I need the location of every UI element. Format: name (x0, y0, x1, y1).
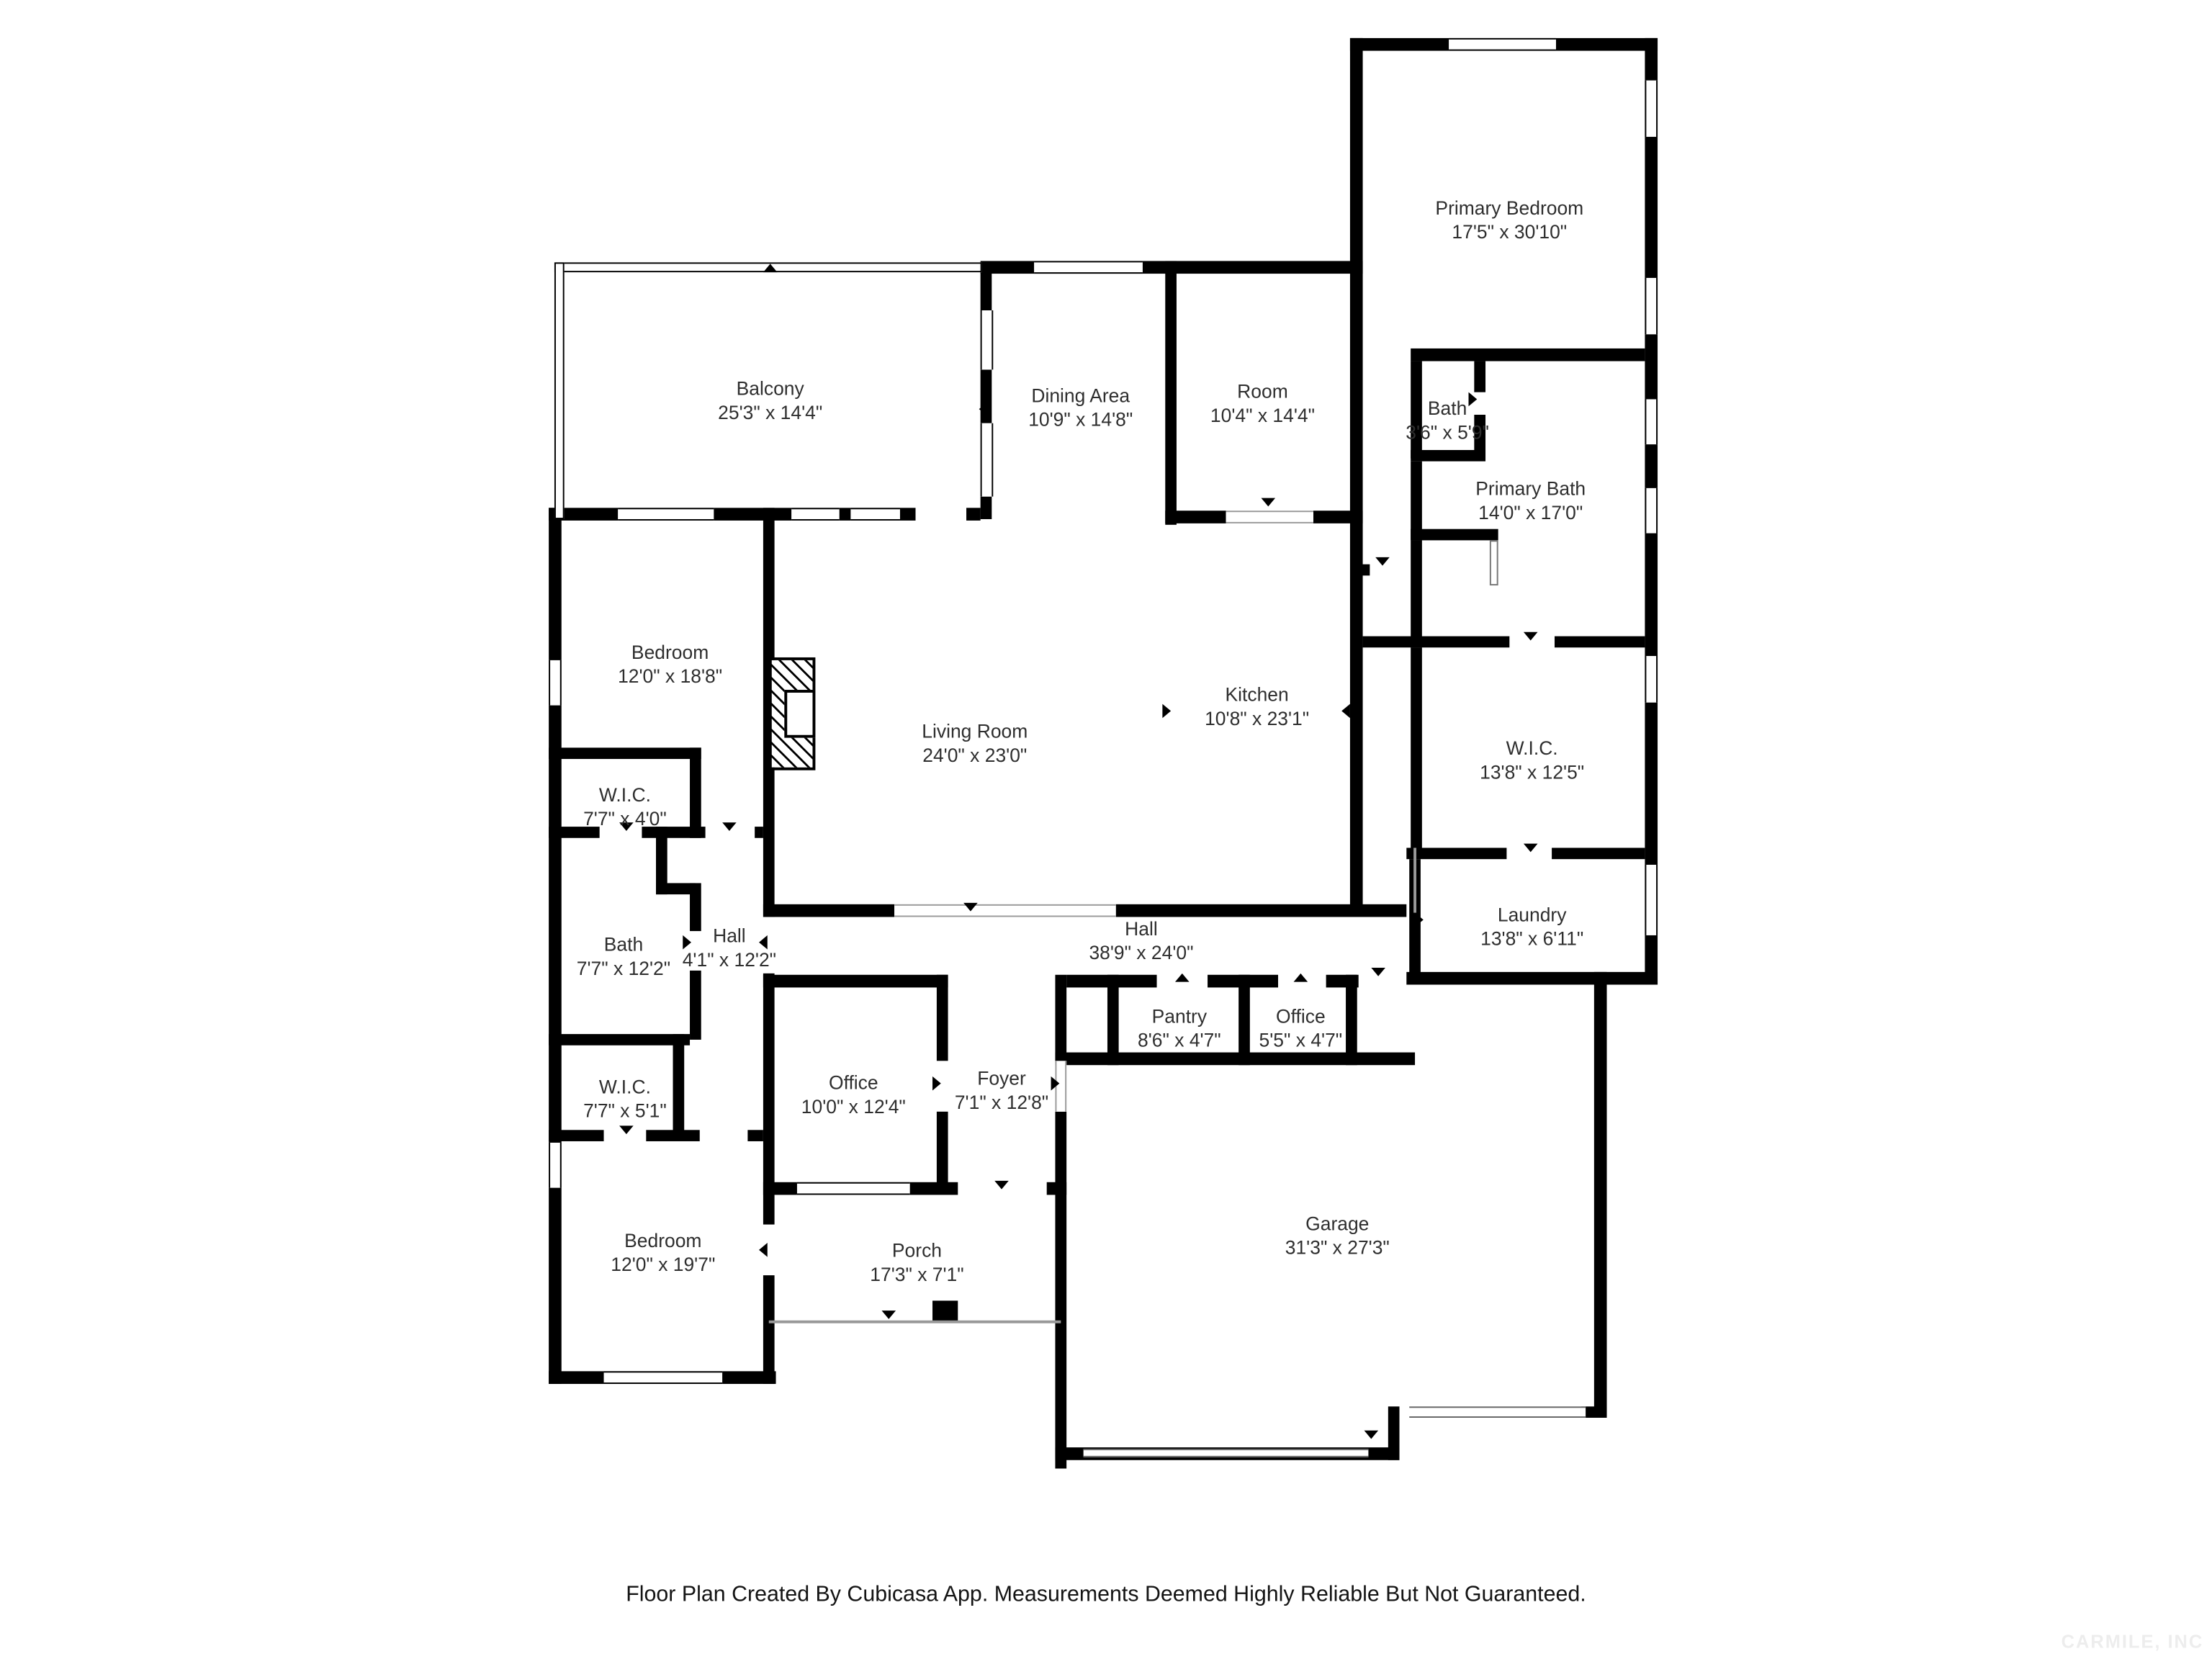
wall-segment (937, 1112, 948, 1192)
wall-segment (1055, 1053, 1415, 1066)
room-label-bath-hall: Bath 7'7" x 12'2" (577, 932, 670, 981)
wall-segment (1116, 904, 1407, 917)
wall-segment (1238, 975, 1250, 1065)
room-label-dining-area: Dining Area 10'9" x 14'8" (1028, 384, 1133, 432)
wall-segment (646, 1130, 699, 1141)
door-marker (1415, 913, 1424, 927)
window-marker (604, 1371, 723, 1384)
garage-door-marker (1084, 1449, 1369, 1457)
wall-opening (894, 904, 1116, 917)
door-marker (1175, 974, 1190, 982)
fireplace-notch (784, 690, 815, 738)
balcony-railing (554, 262, 565, 519)
wall-segment (549, 1130, 603, 1141)
room-label-primary-bath: Primary Bath 14'0" x 17'0" (1475, 477, 1586, 525)
floor-plan-page: Primary Bedroom 17'5" x 30'10" Balcony 2… (0, 0, 2212, 1659)
wall-segment (1055, 1112, 1066, 1469)
room-dims: 31'3" x 27'3" (1285, 1236, 1390, 1259)
room-name: Bedroom (618, 640, 722, 664)
door-marker (1524, 844, 1538, 853)
window-marker (1645, 399, 1658, 444)
window-marker (549, 1143, 562, 1188)
window-marker (791, 508, 840, 521)
window-marker (1449, 38, 1556, 51)
room-label-office-small: Office 5'5" x 4'7" (1259, 1004, 1343, 1053)
wall-segment (1411, 349, 1645, 361)
wall-segment (932, 1300, 958, 1321)
room-dims: 4'1" x 12'2" (683, 948, 776, 972)
door-marker (847, 976, 861, 985)
room-label-living-room: Living Room 24'0" x 23'0" (922, 719, 1028, 768)
room-label-hall-main: Hall 38'9" x 24'0" (1089, 917, 1193, 965)
wall-segment (1165, 511, 1226, 523)
wall-segment (1552, 848, 1645, 859)
room-name: Bath (577, 932, 670, 956)
room-dims: 5'5" x 4'7" (1259, 1028, 1343, 1052)
door-marker (722, 822, 737, 831)
wall-segment (966, 508, 981, 521)
room-name: Porch (870, 1238, 963, 1262)
room-dims: 12'0" x 18'8" (618, 665, 722, 688)
room-dims: 24'0" x 23'0" (922, 743, 1028, 767)
room-name: Room (1210, 379, 1315, 403)
window-marker (1645, 278, 1658, 334)
wall-segment (1350, 38, 1363, 910)
footer-disclaimer: Floor Plan Created By Cubicasa App. Meas… (0, 1583, 2212, 1608)
room-label-bedroom-lower: Bedroom 12'0" x 19'7" (611, 1228, 715, 1277)
wall-segment (1363, 637, 1510, 648)
room-label-balcony: Balcony 25'3" x 14'4" (718, 377, 822, 425)
room-name: Bedroom (611, 1228, 715, 1252)
wall-segment (755, 827, 763, 838)
door-marker (1051, 1076, 1060, 1091)
room-label-room: Room 10'4" x 14'4" (1210, 379, 1315, 428)
room-name: W.I.C. (583, 1075, 667, 1099)
room-name: Primary Bedroom (1435, 196, 1583, 220)
room-dims: 13'8" x 12'5" (1480, 760, 1584, 784)
wall-segment (937, 975, 948, 1061)
door-marker (1162, 704, 1171, 719)
room-label-porch: Porch 17'3" x 7'1" (870, 1238, 963, 1287)
window-marker (850, 508, 900, 521)
room-name: Pantry (1138, 1004, 1221, 1028)
door-marker (979, 402, 988, 416)
room-label-wic-lower: W.I.C. 7'7" x 5'1" (583, 1075, 667, 1123)
wall-segment (1360, 565, 1370, 576)
floor-plan-drawing: Primary Bedroom 17'5" x 30'10" Balcony 2… (0, 0, 2212, 1659)
room-dims: 13'8" x 6'11" (1480, 927, 1583, 950)
room-name: Kitchen (1205, 683, 1309, 706)
room-name: W.I.C. (583, 783, 667, 806)
door-marker (619, 1125, 634, 1134)
wall-segment (690, 747, 701, 837)
wall-segment (549, 747, 701, 759)
wall-segment (673, 1034, 685, 1136)
room-label-hall-small: Hall 4'1" x 12'2" (683, 924, 776, 972)
room-dims: 7'7" x 4'0" (583, 807, 667, 831)
wall-segment (747, 1130, 763, 1141)
door-marker (1371, 968, 1385, 976)
room-label-bath-small: Bath 3'6" x 5'9" (1406, 397, 1489, 445)
window-marker (618, 508, 714, 521)
room-dims: 3'6" x 5'9" (1406, 421, 1489, 444)
room-dims: 38'9" x 24'0" (1089, 941, 1193, 965)
wall-segment (549, 508, 562, 1384)
room-name: Laundry (1480, 903, 1583, 927)
room-dims: 8'6" x 4'7" (1138, 1028, 1221, 1052)
fireplace-icon (769, 657, 816, 770)
window-marker (1645, 81, 1658, 137)
room-name: Office (801, 1071, 906, 1094)
room-name: W.I.C. (1480, 737, 1584, 760)
wall-segment (1406, 848, 1506, 859)
room-dims: 10'9" x 14'8" (1028, 408, 1133, 431)
wall-segment (1411, 647, 1422, 853)
room-dims: 12'0" x 19'7" (611, 1253, 715, 1277)
window-marker (1645, 656, 1658, 703)
room-label-office: Office 10'0" x 12'4" (801, 1071, 906, 1119)
wall-segment (1346, 975, 1357, 1065)
door-marker (881, 1310, 896, 1319)
thin-line (1413, 848, 1416, 912)
room-dims: 7'7" x 5'1" (583, 1099, 667, 1123)
wall-segment (1055, 975, 1066, 1061)
room-label-kitchen: Kitchen 10'8" x 23'1" (1205, 683, 1309, 731)
wall-segment (1107, 975, 1119, 1065)
room-dims: 7'7" x 12'2" (577, 956, 670, 980)
door-marker (1375, 557, 1390, 566)
door-marker (1262, 498, 1276, 507)
wall-segment (981, 268, 992, 310)
room-name: Office (1259, 1004, 1343, 1028)
room-label-pantry: Pantry 8'6" x 4'7" (1138, 1004, 1221, 1053)
room-dims: 7'1" x 12'8" (955, 1090, 1048, 1114)
wall-segment (1406, 972, 1658, 985)
room-name: Living Room (922, 719, 1028, 743)
room-name: Garage (1285, 1212, 1390, 1236)
room-label-wic-upper: W.I.C. 7'7" x 4'0" (583, 783, 667, 831)
wall-segment (1474, 361, 1485, 392)
wall-opening (1226, 511, 1313, 523)
wall-segment (1411, 540, 1422, 647)
room-name: Primary Bath (1475, 477, 1586, 500)
wall-segment (1411, 529, 1498, 541)
wall-segment (1165, 268, 1177, 525)
room-name: Balcony (718, 377, 822, 400)
wall-segment (549, 1034, 690, 1046)
room-dims: 10'4" x 14'4" (1210, 403, 1315, 427)
room-label-garage: Garage 31'3" x 27'3" (1285, 1212, 1390, 1260)
wall-segment (690, 971, 701, 1040)
room-name: Foyer (955, 1066, 1048, 1090)
door-marker (1524, 632, 1538, 641)
room-dims: 10'8" x 23'1" (1205, 707, 1309, 731)
room-name: Bath (1406, 397, 1489, 421)
wall-segment (1388, 1406, 1400, 1460)
room-dims: 10'0" x 12'4" (801, 1094, 906, 1118)
window-marker (1034, 261, 1143, 274)
door-marker (963, 903, 978, 912)
window-marker (981, 310, 994, 369)
window-marker (1645, 488, 1658, 534)
window-marker (797, 1182, 910, 1195)
room-dims: 17'3" x 7'1" (870, 1262, 963, 1286)
room-name: Hall (1089, 917, 1193, 940)
wall-segment (981, 497, 992, 519)
window-marker (549, 660, 562, 706)
room-label-foyer: Foyer 7'1" x 12'8" (955, 1066, 1048, 1115)
wall-segment (1555, 637, 1645, 648)
wall-segment (1594, 972, 1607, 1416)
window-marker (981, 423, 994, 497)
wall-segment (763, 1275, 775, 1384)
door-marker (1364, 1431, 1379, 1439)
window-marker (1645, 865, 1658, 935)
room-dims: 17'5" x 30'10" (1435, 220, 1583, 244)
room-name: Dining Area (1028, 384, 1133, 408)
door-marker (763, 264, 778, 272)
wall-segment (1313, 511, 1363, 523)
door-marker (759, 1243, 768, 1257)
room-name: Hall (683, 924, 776, 948)
room-label-wic-primary: W.I.C. 13'8" x 12'5" (1480, 737, 1584, 785)
room-label-laundry: Laundry 13'8" x 6'11" (1480, 903, 1583, 951)
room-dims: 25'3" x 14'4" (718, 400, 822, 424)
shower-glass-icon (1490, 540, 1498, 585)
wall-segment (763, 904, 894, 917)
garage-door-marker (1409, 1406, 1586, 1418)
room-dims: 14'0" x 17'0" (1475, 501, 1586, 525)
room-label-bedroom-upper: Bedroom 12'0" x 18'8" (618, 640, 722, 688)
thin-line (769, 1321, 1061, 1323)
watermark: CARMILE, INC (2062, 1631, 2204, 1652)
room-label-primary-bedroom: Primary Bedroom 17'5" x 30'10" (1435, 196, 1583, 244)
door-marker (1341, 704, 1350, 719)
door-marker (1294, 974, 1308, 982)
door-marker (932, 1076, 941, 1091)
wall-segment (1165, 261, 1362, 274)
door-marker (994, 1181, 1009, 1190)
